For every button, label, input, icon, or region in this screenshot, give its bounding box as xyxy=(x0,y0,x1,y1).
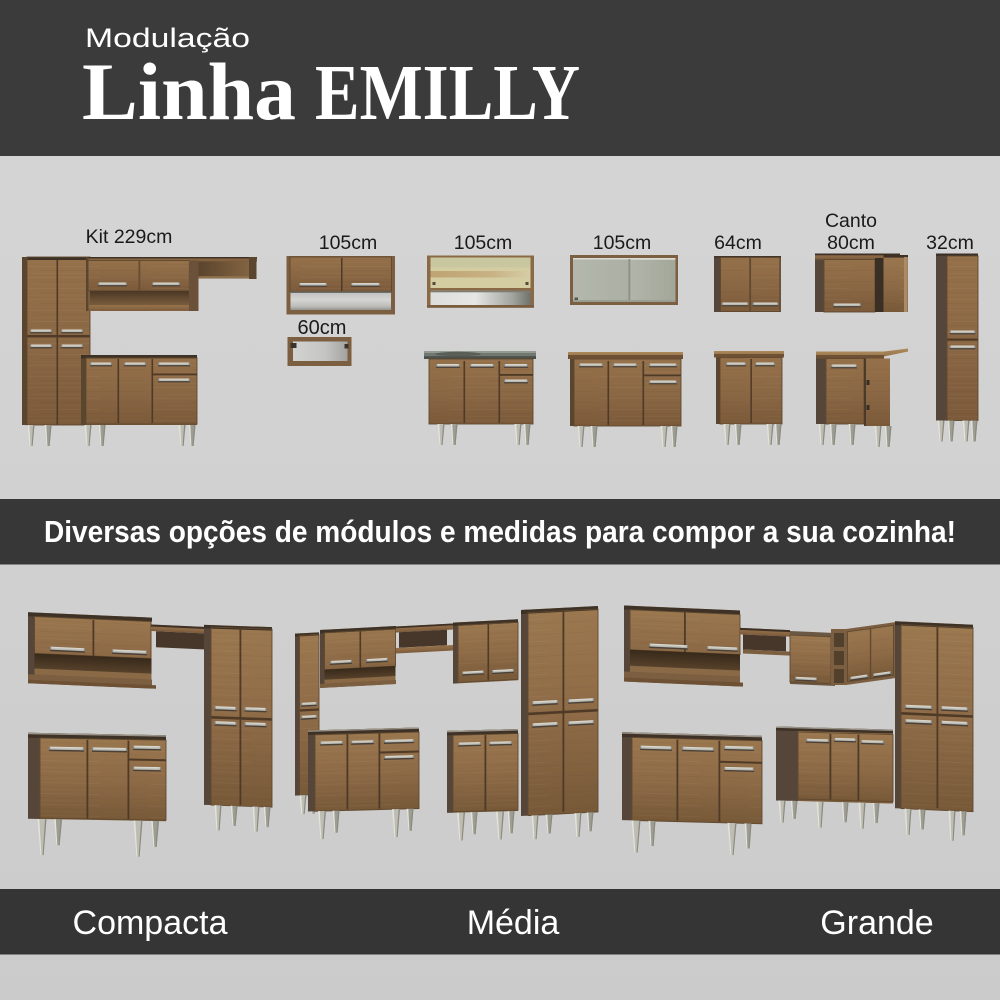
svg-text:32cm: 32cm xyxy=(926,232,974,254)
svg-text:Média: Média xyxy=(467,904,560,942)
svg-text:105cm: 105cm xyxy=(319,232,378,254)
svg-text:Kit 229cm: Kit 229cm xyxy=(86,226,173,248)
svg-text:Grande: Grande xyxy=(820,904,933,942)
svg-text:EMILLY: EMILLY xyxy=(315,50,580,137)
svg-text:64cm: 64cm xyxy=(714,232,762,254)
svg-text:Canto: Canto xyxy=(825,210,877,232)
svg-text:Linha: Linha xyxy=(82,46,296,137)
svg-text:Diversas opções de módulos e m: Diversas opções de módulos e medidas par… xyxy=(44,515,956,549)
svg-text:60cm: 60cm xyxy=(298,317,347,339)
svg-text:Compacta: Compacta xyxy=(73,904,228,942)
svg-text:105cm: 105cm xyxy=(593,232,652,254)
svg-text:80cm: 80cm xyxy=(827,232,875,254)
svg-text:105cm: 105cm xyxy=(454,232,513,254)
